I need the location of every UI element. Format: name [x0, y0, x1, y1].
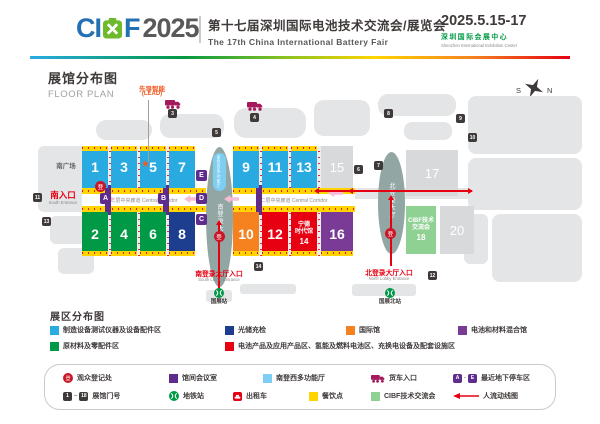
hall-3: 3: [111, 146, 137, 188]
gate-range-icon: 1–18: [63, 392, 88, 401]
lead-exhibitor-label-en: (LEAD): [128, 91, 176, 97]
hall-14: 宁德时代馆14: [291, 212, 317, 256]
zone-color-swatch: [225, 342, 234, 351]
hall-8: 8: [169, 212, 195, 256]
floor-plan-map: 南广场二层中央廊道 Central Corridor二层中央廊道 Central…: [0, 0, 600, 424]
parking-E: E: [196, 170, 207, 181]
lead-star-icon: ★: [141, 160, 150, 170]
hall-label: CIBF技术交流会18: [406, 206, 436, 254]
corridor-walkway-label: 二层中央廊道 Central Corridor: [233, 194, 355, 206]
symbol-legend-box: 登观众登记处馆间会议室南登西多功能厅货车入口A-E最近地下停车区1–18展馆门号…: [44, 364, 556, 410]
hall-label: 4: [111, 212, 137, 256]
building: [96, 120, 152, 140]
zone-color-swatch: [50, 342, 59, 351]
hall-label: 8: [169, 212, 195, 256]
zone-legend-title: 展区分布图: [50, 308, 105, 323]
flow-arrowhead-mid: [348, 188, 353, 194]
gate-14: 14: [254, 262, 263, 271]
hall-label: 9: [233, 146, 259, 188]
hall-label-line: CIBF技术: [408, 218, 434, 226]
hall-6: 6: [140, 212, 166, 256]
zone-legend-item: 国际馆: [346, 325, 380, 335]
flow-arrowhead-east: [468, 188, 473, 194]
hall-number: 20: [450, 223, 464, 238]
hall-number: 6: [149, 226, 157, 242]
building: [234, 108, 306, 138]
hall-label: 7: [169, 146, 195, 188]
hall-label: 2: [82, 212, 108, 256]
hall-20: 20: [440, 206, 474, 254]
meeting-room-bar: [256, 185, 262, 215]
parking-swatch: A: [453, 374, 462, 383]
hall-number: 16: [329, 226, 345, 242]
hall-label: 13: [291, 146, 317, 188]
hall-label: 宁德时代馆14: [291, 212, 317, 256]
hall-16: 16: [321, 212, 353, 256]
color-swatch: [169, 374, 178, 383]
parking-D: D: [196, 193, 207, 204]
symbol-legend-label: 馆间会议室: [182, 373, 217, 383]
hall-label: 11: [262, 146, 288, 188]
building: [468, 158, 582, 210]
hall-9: 9: [233, 146, 259, 188]
symbol-legend-item: 货车入口: [371, 373, 417, 383]
hall-11: 11: [262, 146, 288, 188]
gate-number-swatch: 18: [79, 392, 88, 401]
symbol-legend-label: 出租车: [246, 391, 267, 401]
north-lobby-entrance-label-en: North Lobby Entrance: [356, 276, 422, 281]
gate-number-swatch: 1: [63, 392, 72, 401]
page: CI F 2025 第十七届深圳国际电池技术交流会/展览会 The 17th C…: [0, 0, 600, 424]
zone-color-swatch: [50, 326, 59, 335]
building: [492, 214, 582, 282]
symbol-legend-label: 最近地下停车区: [481, 373, 530, 383]
symbol-legend-item: CIBF技术交流会: [371, 391, 435, 401]
hall-number: 3: [120, 159, 128, 175]
hall-15: 15: [321, 146, 353, 188]
hall-12: 12: [262, 212, 288, 256]
zone-legend-item: 电池和材料混合馆: [458, 325, 527, 335]
symbol-legend-item: 地铁站: [169, 391, 204, 401]
symbol-legend-item: 出租车: [233, 391, 267, 401]
zone-color-swatch: [458, 326, 467, 335]
hall-number: 12: [267, 226, 283, 242]
zone-color-swatch: [225, 326, 234, 335]
parking-B: B: [158, 193, 169, 204]
metro-station-south-label: 国展站: [186, 297, 252, 305]
hall-label: 3: [111, 146, 137, 188]
hall-10: 10: [233, 212, 259, 256]
zone-legend-label: 电池和材料混合馆: [471, 325, 527, 335]
zone-legend-label: 国际馆: [359, 325, 380, 335]
hall-4: 4: [111, 212, 137, 256]
hall-number: 7: [178, 159, 186, 175]
symbol-legend-item: 1–18展馆门号: [63, 391, 120, 401]
gate-10: 10: [468, 133, 477, 142]
taxi-icon: [233, 392, 242, 401]
building: [314, 100, 370, 136]
zone-legend-item: 光储充检: [225, 325, 266, 335]
symbol-legend-label: 人流动线图: [483, 391, 518, 401]
zone-legend-label: 制造设备测试仪器及设备配件区: [63, 325, 161, 335]
hall-number: 13: [296, 159, 312, 175]
zone-legend-item: 电池产品及应用产品区、氢能及燃料电池区、充换电设备及配套设施区: [225, 341, 455, 351]
hall-18: CIBF技术交流会18: [406, 206, 436, 254]
zone-legend-item: 原材料及零配件区: [50, 341, 119, 351]
building: [468, 96, 582, 154]
building: [404, 122, 452, 140]
zone-legend-label: 原材料及零配件区: [63, 341, 119, 351]
gate-7: 7: [374, 161, 383, 170]
gate-13: 13: [42, 217, 51, 226]
hall-label: 6: [140, 212, 166, 256]
metro-station-north-label: 国展北站: [357, 297, 423, 305]
parking-C: C: [196, 214, 207, 225]
freight-truck-icon: [247, 98, 263, 116]
symbol-legend-label: 南登西多功能厅: [276, 373, 325, 383]
registration-point-icon: 登: [385, 228, 396, 239]
gate-6: 6: [354, 165, 363, 174]
registration-icon: 登: [63, 373, 73, 383]
symbol-legend-label: 货车入口: [389, 373, 417, 383]
hall-label: 20: [440, 206, 474, 254]
truck-icon: [371, 374, 385, 383]
hall-17: 17: [406, 150, 458, 196]
color-swatch: [263, 374, 272, 383]
hall-number: 9: [242, 159, 250, 175]
registration-point-icon: 登: [95, 181, 106, 192]
lead-pointer-line: [148, 100, 149, 162]
zone-legend-label: 光储充检: [238, 325, 266, 335]
symbol-legend-item: 馆间会议室: [169, 373, 217, 383]
hall-number: 11: [268, 159, 283, 175]
hall-number: 1: [91, 159, 99, 175]
symbol-legend-label: CIBF技术交流会: [384, 391, 435, 401]
symbol-legend-label: 地铁站: [183, 391, 204, 401]
gate-9: 9: [456, 114, 465, 123]
hall-number: 10: [238, 226, 254, 242]
building: [352, 284, 416, 296]
hall-2: 2: [82, 212, 108, 256]
hall-label: 10: [233, 212, 259, 256]
parking-swatch: E: [468, 374, 477, 383]
flow-arrow-icon: [453, 392, 479, 400]
freight-truck-icon: [165, 96, 181, 114]
symbol-legend-label: 观众登记处: [77, 373, 112, 383]
hall-number: 8: [178, 226, 186, 242]
symbol-legend-item: 登观众登记处: [63, 373, 112, 383]
color-swatch: [371, 392, 380, 401]
flow-arrowhead-north-up: [388, 195, 394, 200]
flow-line-north-corridor: [318, 190, 472, 191]
hall-number: 2: [91, 226, 99, 242]
hall-label: 17: [406, 150, 458, 196]
hall-7: 7: [169, 146, 195, 188]
south-lobby-entrance-label-en: South Lobby Entrance: [186, 277, 252, 282]
hall-label: 15: [321, 146, 353, 188]
symbol-legend-item: 餐饮点: [309, 391, 343, 401]
flow-arrowhead-south-up: [216, 220, 222, 225]
hall-5: 5★: [140, 146, 166, 188]
registration-point-icon: 登: [214, 231, 225, 242]
symbol-legend-item: A-E最近地下停车区: [453, 373, 530, 383]
metro-icon: [169, 391, 179, 401]
hall-number: 4: [120, 226, 128, 242]
flow-arrowhead-west: [314, 188, 319, 194]
hall-label: 12: [262, 212, 288, 256]
hall-label-line: 宁德: [298, 222, 310, 230]
hall-label-line: 时代馆: [295, 229, 313, 237]
zone-legend-item: 制造设备测试仪器及设备配件区: [50, 325, 161, 335]
hall-label: 16: [321, 212, 353, 256]
symbol-legend-label: 展馆门号: [92, 391, 120, 401]
gate-8: 8: [384, 109, 393, 118]
hall-number: 15: [330, 160, 344, 175]
hall-13: 13: [291, 146, 317, 188]
symbol-legend-item: 人流动线图: [453, 391, 518, 401]
hall-label-line: 交流会: [412, 225, 430, 233]
zone-color-swatch: [346, 326, 355, 335]
building: [240, 284, 296, 294]
hall-label-line: 18: [417, 233, 426, 243]
hall-number: 5: [149, 159, 157, 175]
parking-range-icon: A-E: [453, 374, 477, 383]
gate-12: 12: [428, 271, 437, 280]
gate-5: 5: [212, 128, 221, 137]
color-swatch: [309, 392, 318, 401]
zone-legend-label: 电池产品及应用产品区、氢能及燃料电池区、充换电设备及配套设施区: [238, 341, 455, 351]
hall-number: 17: [425, 166, 439, 181]
south-lobby-west-multifunction-hall: 南登西多功能厅: [213, 153, 226, 191]
symbol-legend-item: 南登西多功能厅: [263, 373, 325, 383]
south-entrance-label-en: South Entrance: [36, 200, 90, 205]
parking-A: A: [100, 193, 111, 204]
hall-label-line: 14: [300, 237, 309, 247]
symbol-legend-label: 餐饮点: [322, 391, 343, 401]
